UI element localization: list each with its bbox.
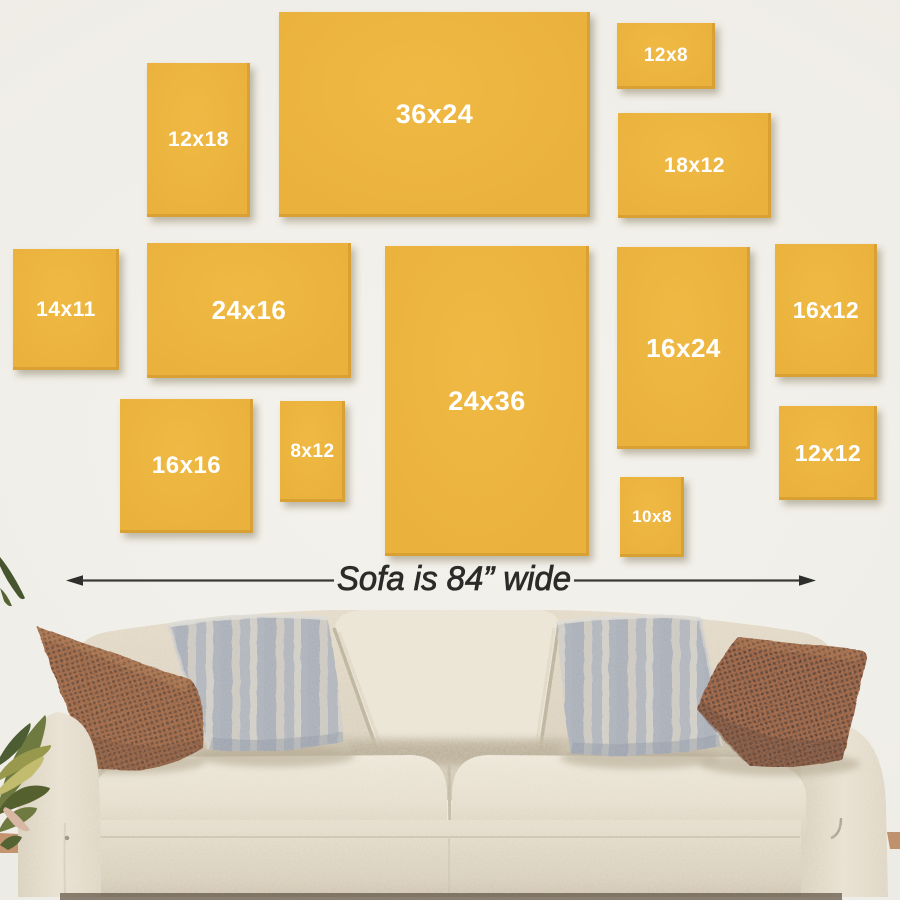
svg-text:Sofa is 84” wide: Sofa is 84” wide [337,560,571,598]
